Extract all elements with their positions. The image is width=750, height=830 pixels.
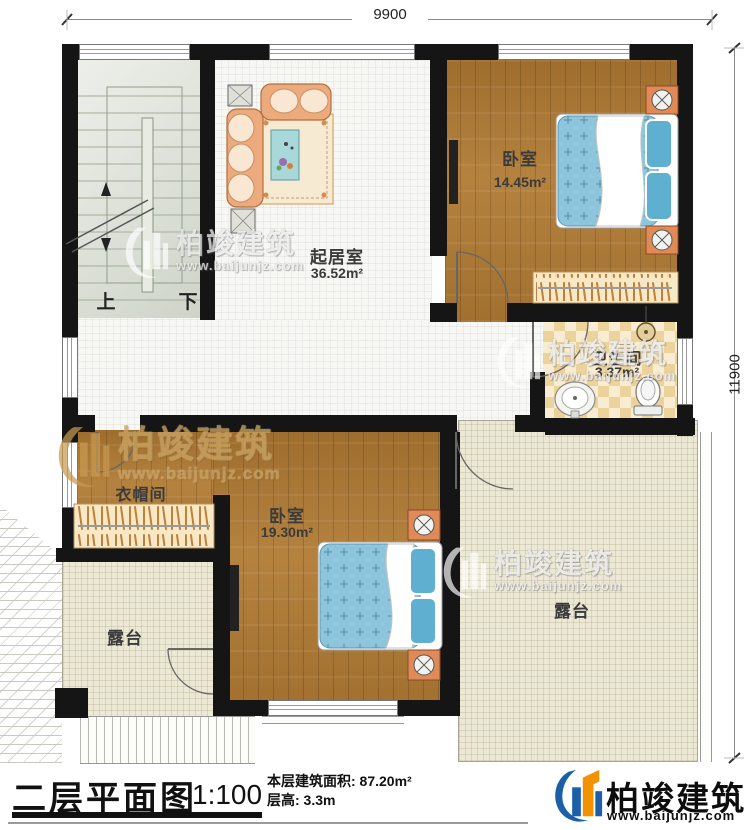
bedroom1-label: 卧室: [460, 145, 580, 170]
watermark: 柏竣建筑 www.baijunjz.com: [52, 420, 281, 490]
wall-cloakroom-bottom: [56, 548, 215, 562]
plan-scale: 1:100: [192, 779, 262, 811]
title-underline-thick: [12, 812, 262, 818]
window-top-living: [269, 44, 415, 60]
window-top-stairs: [79, 44, 190, 60]
bedroom2-window-sill: [262, 716, 404, 724]
stairs-up-label: 上: [91, 287, 121, 314]
watermark-logo-icon: [492, 332, 544, 390]
watermark-logo-icon: [120, 222, 172, 280]
floorplan-page: 9900 11900: [0, 0, 750, 830]
watermark-name: 柏竣建筑: [118, 426, 281, 465]
watermark-url: www.baijunjz.com: [548, 368, 676, 383]
brand-logo-icon: [549, 766, 605, 826]
roof-hatch-left: [0, 505, 62, 763]
watermark-name: 柏竣建筑: [176, 229, 304, 258]
terrace-right-label: 露台: [512, 597, 632, 622]
window-top-bedroom1: [498, 44, 630, 60]
watermark: 柏竣建筑 www.baijunjz.com: [492, 332, 676, 390]
wall-bathroom-bottom: [545, 418, 695, 435]
watermark-name: 柏竣建筑: [494, 549, 622, 578]
watermark: 柏竣建筑 www.baijunjz.com: [120, 222, 304, 280]
window-bedroom2: [268, 700, 398, 716]
wall-bedroom1-bottom-b: [507, 303, 692, 322]
watermark-logo-icon: [438, 542, 490, 600]
wall-living-bedroom1: [430, 44, 447, 256]
terrace-left-label: 露台: [75, 624, 175, 649]
bedroom1-area: 14.45m²: [460, 174, 580, 190]
stairs-down-label: 下: [173, 287, 203, 314]
dimension-right-value: 11900: [727, 340, 744, 410]
title-underline-thin: [8, 822, 528, 824]
terrace-right-railing: [700, 432, 712, 762]
wall-bedroom1-bottom-a: [430, 303, 457, 322]
terrace-left-railing: [80, 716, 255, 764]
corner-column: [55, 688, 88, 718]
plan-height-info: 层高: 3.3m: [267, 792, 335, 809]
plan-area-info: 本层建筑面积: 87.20m²: [267, 773, 412, 790]
stair-room-floor: [78, 58, 200, 320]
watermark: 柏竣建筑 www.baijunjz.com: [438, 542, 622, 600]
wall-hall-bottom-c: [515, 415, 545, 432]
dimension-top-value: 9900: [352, 6, 428, 23]
bedroom2-area: 19.30m²: [227, 524, 347, 540]
watermark-name: 柏竣建筑: [548, 339, 676, 368]
brand-url: www.baijunjz.com: [607, 808, 735, 823]
watermark-url: www.baijunjz.com: [176, 258, 304, 273]
bedroom1-floor: [445, 58, 679, 322]
watermark-url: www.baijunjz.com: [494, 578, 622, 593]
window-bathroom: [677, 338, 693, 405]
watermark-logo-icon: [52, 420, 114, 490]
window-left-hall: [62, 337, 78, 398]
watermark-url: www.baijunjz.com: [118, 464, 281, 484]
